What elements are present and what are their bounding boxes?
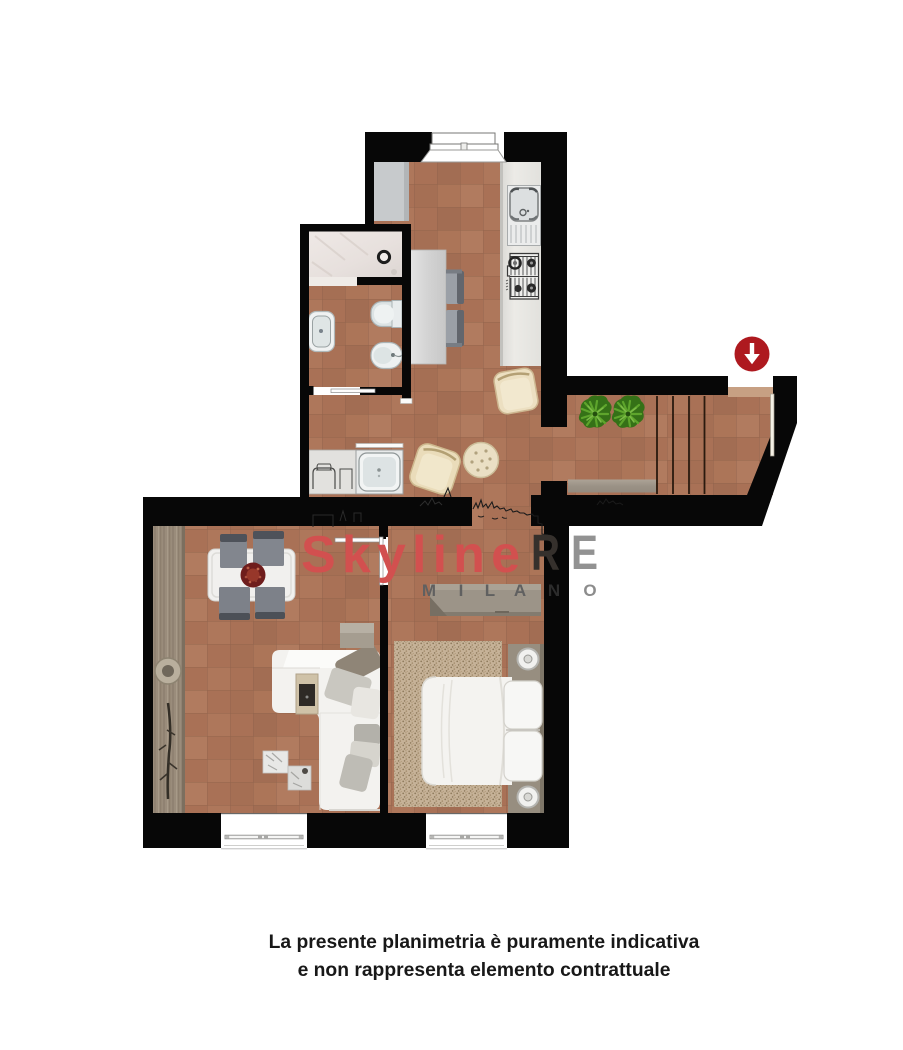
- svg-text:N: N: [548, 581, 560, 600]
- svg-text:e non rappresenta elemento con: e non rappresenta elemento contrattuale: [298, 960, 671, 981]
- svg-text:L: L: [485, 581, 495, 600]
- svg-text:R: R: [531, 524, 560, 581]
- svg-text:O: O: [583, 581, 596, 600]
- svg-text:I: I: [459, 581, 464, 600]
- svg-text:E: E: [571, 527, 598, 580]
- svg-text:La presente planimetria è pura: La presente planimetria è puramente indi…: [269, 932, 700, 953]
- svg-text:A: A: [514, 581, 526, 600]
- svg-text:M: M: [422, 581, 436, 600]
